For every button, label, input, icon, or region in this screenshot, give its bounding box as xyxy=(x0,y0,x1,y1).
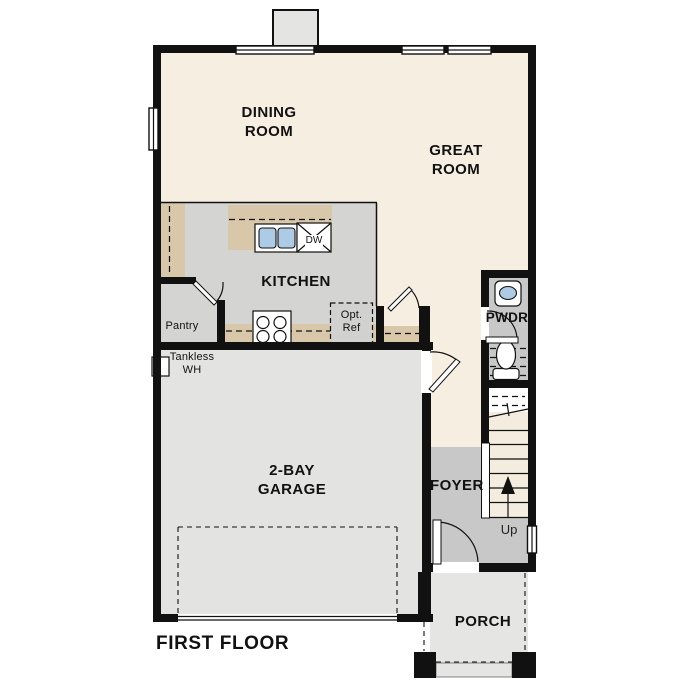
powder-door-leaf xyxy=(486,337,518,343)
wall-closet-left xyxy=(376,306,384,348)
dishwasher-label-text: DW xyxy=(305,235,324,246)
toilet-bowl xyxy=(497,341,516,369)
front-door-leaf xyxy=(433,520,441,564)
hall-floor-lower xyxy=(431,342,481,447)
wall-pantry-right xyxy=(217,300,225,342)
burner-3 xyxy=(257,331,269,343)
plan-title: FIRST FLOOR xyxy=(156,634,356,653)
wall-garage-top xyxy=(153,342,433,350)
wall-powder-left xyxy=(481,270,489,443)
first-floor-plan: DINING ROOM GREAT ROOM KITCHEN Pantry DW… xyxy=(0,0,687,687)
porch-post-right xyxy=(512,652,536,678)
wall-powder-top xyxy=(481,270,536,278)
fireplace-bump xyxy=(273,10,318,49)
stairs-up-label: Up xyxy=(494,520,524,539)
dining-great-floor xyxy=(161,53,528,203)
sink-basin-left xyxy=(259,228,276,248)
room-label-porch: PORCH xyxy=(451,612,515,631)
porch-post-left xyxy=(414,652,436,678)
porch-step xyxy=(436,663,512,677)
garage-door-opening xyxy=(178,614,397,622)
sink-basin-right xyxy=(278,228,295,248)
entry-door-opening xyxy=(421,351,432,393)
dishwasher-label: DW xyxy=(300,231,328,250)
wall-pantry-top xyxy=(161,277,196,284)
room-label-garage: 2-BAY GARAGE xyxy=(247,461,337,499)
toilet-tank xyxy=(493,369,519,380)
room-label-powder: PWDR xyxy=(483,308,531,327)
room-label-kitchen: KITCHEN xyxy=(246,272,346,291)
room-label-pantry: Pantry xyxy=(154,320,210,333)
floor-plan-drawing xyxy=(0,0,687,687)
wall-powder-bottom xyxy=(481,380,536,388)
burner-1 xyxy=(257,317,269,329)
burner-2 xyxy=(274,317,286,329)
room-label-foyer: FOYER xyxy=(430,476,482,495)
room-label-great: GREAT ROOM xyxy=(408,141,504,179)
burner-4 xyxy=(274,331,286,343)
great-room-floor xyxy=(377,203,528,270)
optional-ref-label: Opt. Ref xyxy=(331,309,372,334)
left-counter xyxy=(161,203,185,278)
powder-sink-basin xyxy=(500,287,517,300)
room-label-dining: DINING ROOM xyxy=(223,103,315,141)
wall-closet-right xyxy=(419,306,430,348)
tankless-wh-label: Tankless WH xyxy=(166,351,218,376)
